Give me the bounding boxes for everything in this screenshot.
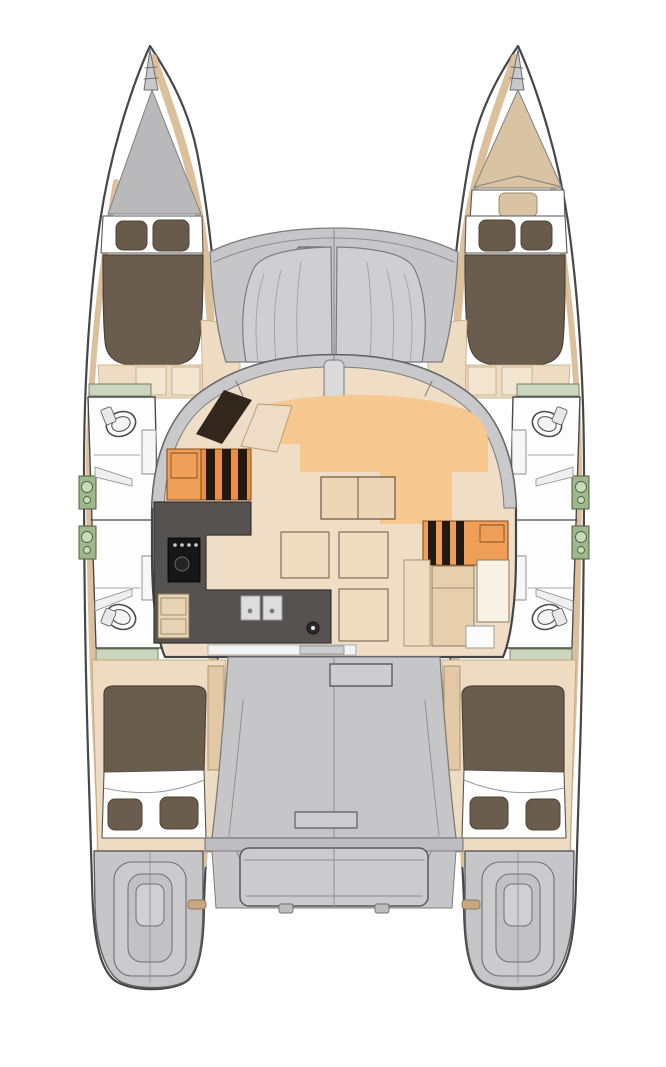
cockpit-hatch-aft (295, 812, 357, 828)
stove-knob-3 (187, 543, 191, 547)
stove-knob-1 (173, 543, 177, 547)
salon-door-panel (300, 646, 344, 654)
sink-aft-basin-port (82, 532, 93, 543)
sink-fwd-tap-starboard (578, 497, 585, 504)
transom-handle-port (188, 900, 206, 909)
sink-aft-basin-starboard (576, 532, 587, 543)
galley-drain-dot (311, 626, 315, 630)
galley-oven (158, 594, 189, 638)
salon-cushion-b (339, 532, 388, 578)
galley-orange-cabinet (167, 449, 201, 500)
aft-cabin-pillow-outboard-port (108, 799, 142, 830)
chart-bench (404, 560, 430, 646)
aft-cabin-pillow-inboard-starboard (470, 797, 508, 829)
chart-slat-bar-2 (442, 521, 450, 565)
fwd-cabin-bed-port (103, 255, 203, 365)
cockpit-hatch-forward (330, 664, 392, 686)
cockpit-bench-foot-starboard (375, 904, 389, 913)
chart-cabinet-c (466, 626, 494, 648)
salon-cushion-a (281, 532, 329, 578)
sink-aft-tap-starboard (578, 547, 585, 554)
galley-slat-bar-2 (222, 449, 231, 500)
deck-hatch-strip-aft-port (96, 649, 158, 660)
chart-slat-bar-1 (428, 521, 436, 565)
stove-knob-2 (180, 543, 184, 547)
deck-hatch-strip-aft-starboard (510, 649, 572, 660)
fwd-cabin-pillow-outboard-port (116, 221, 147, 250)
fwd-cabin-pillow-inboard-port (153, 220, 189, 251)
sink-fwd-basin-starboard (576, 482, 587, 493)
heads-locker-fwd-port (142, 430, 156, 474)
fwd-cabin-pillow-inboard-starboard (479, 220, 515, 251)
galley-sink-right (263, 596, 282, 620)
aft-cabin-pillow-inboard-port (160, 797, 198, 829)
salon-cushion-c (339, 589, 388, 641)
stove-knob-4 (194, 543, 198, 547)
sink-fwd-basin-port (82, 482, 93, 493)
heads-locker-fwd-starboard (512, 430, 526, 474)
fwd-cabin-step-b-port (172, 367, 200, 395)
cockpit-bench-foot-port (279, 904, 293, 913)
transom-handle-starboard (462, 900, 480, 909)
aft-cabin-pillow-outboard-starboard (526, 799, 560, 830)
galley-slat-bar-1 (206, 449, 215, 500)
deck-hatch-strip-fwd-port (89, 384, 151, 396)
bow-berth-pillow (499, 193, 537, 217)
galley-tap-left (248, 609, 253, 614)
galley-sink-left (241, 596, 260, 620)
sink-fwd-tap-port (84, 497, 91, 504)
fwd-cabin-bed-starboard (465, 255, 565, 365)
floorplan (0, 0, 666, 1067)
galley-slat-bar-3 (238, 449, 247, 500)
galley-tap-right (270, 609, 275, 614)
deck-hatch-strip-fwd-starboard (517, 384, 579, 396)
mast-post (324, 360, 344, 400)
chart-cabinet-b (477, 560, 509, 622)
floorplan-canvas (0, 0, 666, 1067)
fwd-cabin-step-b-starboard (468, 367, 496, 395)
fwd-cabin-pillow-outboard-starboard (521, 221, 552, 250)
chart-slat-bar-3 (456, 521, 464, 565)
sink-aft-tap-port (84, 547, 91, 554)
stove-burner (175, 557, 189, 571)
